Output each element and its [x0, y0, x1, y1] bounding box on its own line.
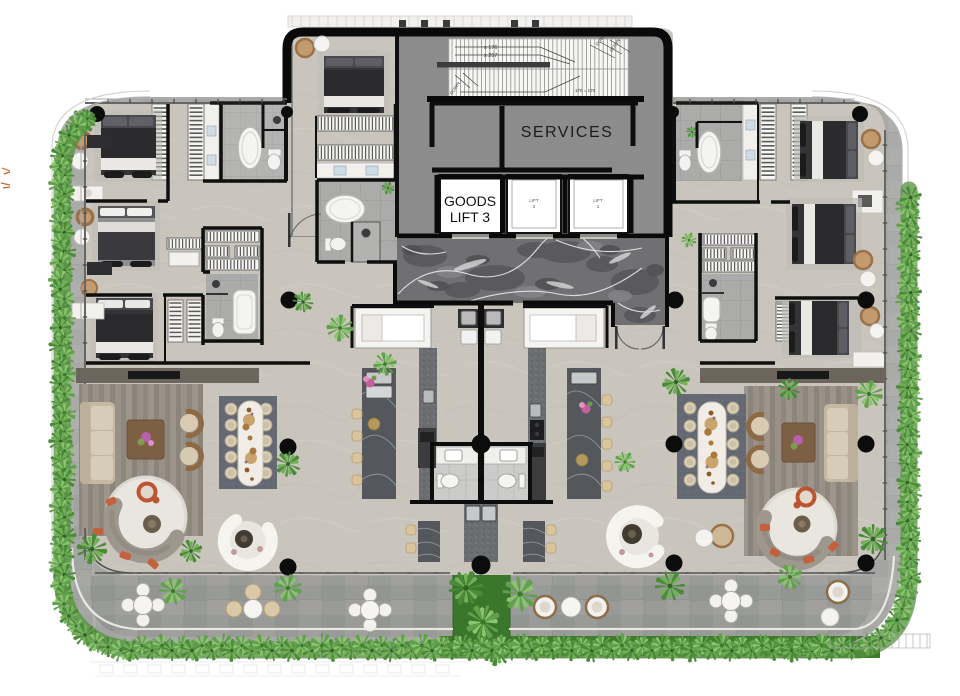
svg-text:LIFT: LIFT [529, 198, 539, 203]
svg-text:LIFT: LIFT [593, 198, 603, 203]
svg-text:LIFT 3: LIFT 3 [450, 209, 490, 225]
svg-text:GOODS: GOODS [444, 193, 496, 209]
svg-text:x 176: x 176 [484, 45, 497, 51]
svg-text:x 297: x 297 [484, 53, 497, 59]
svg-text:170 = 170: 170 = 170 [575, 88, 596, 93]
svg-text:SERVICES: SERVICES [521, 124, 614, 141]
